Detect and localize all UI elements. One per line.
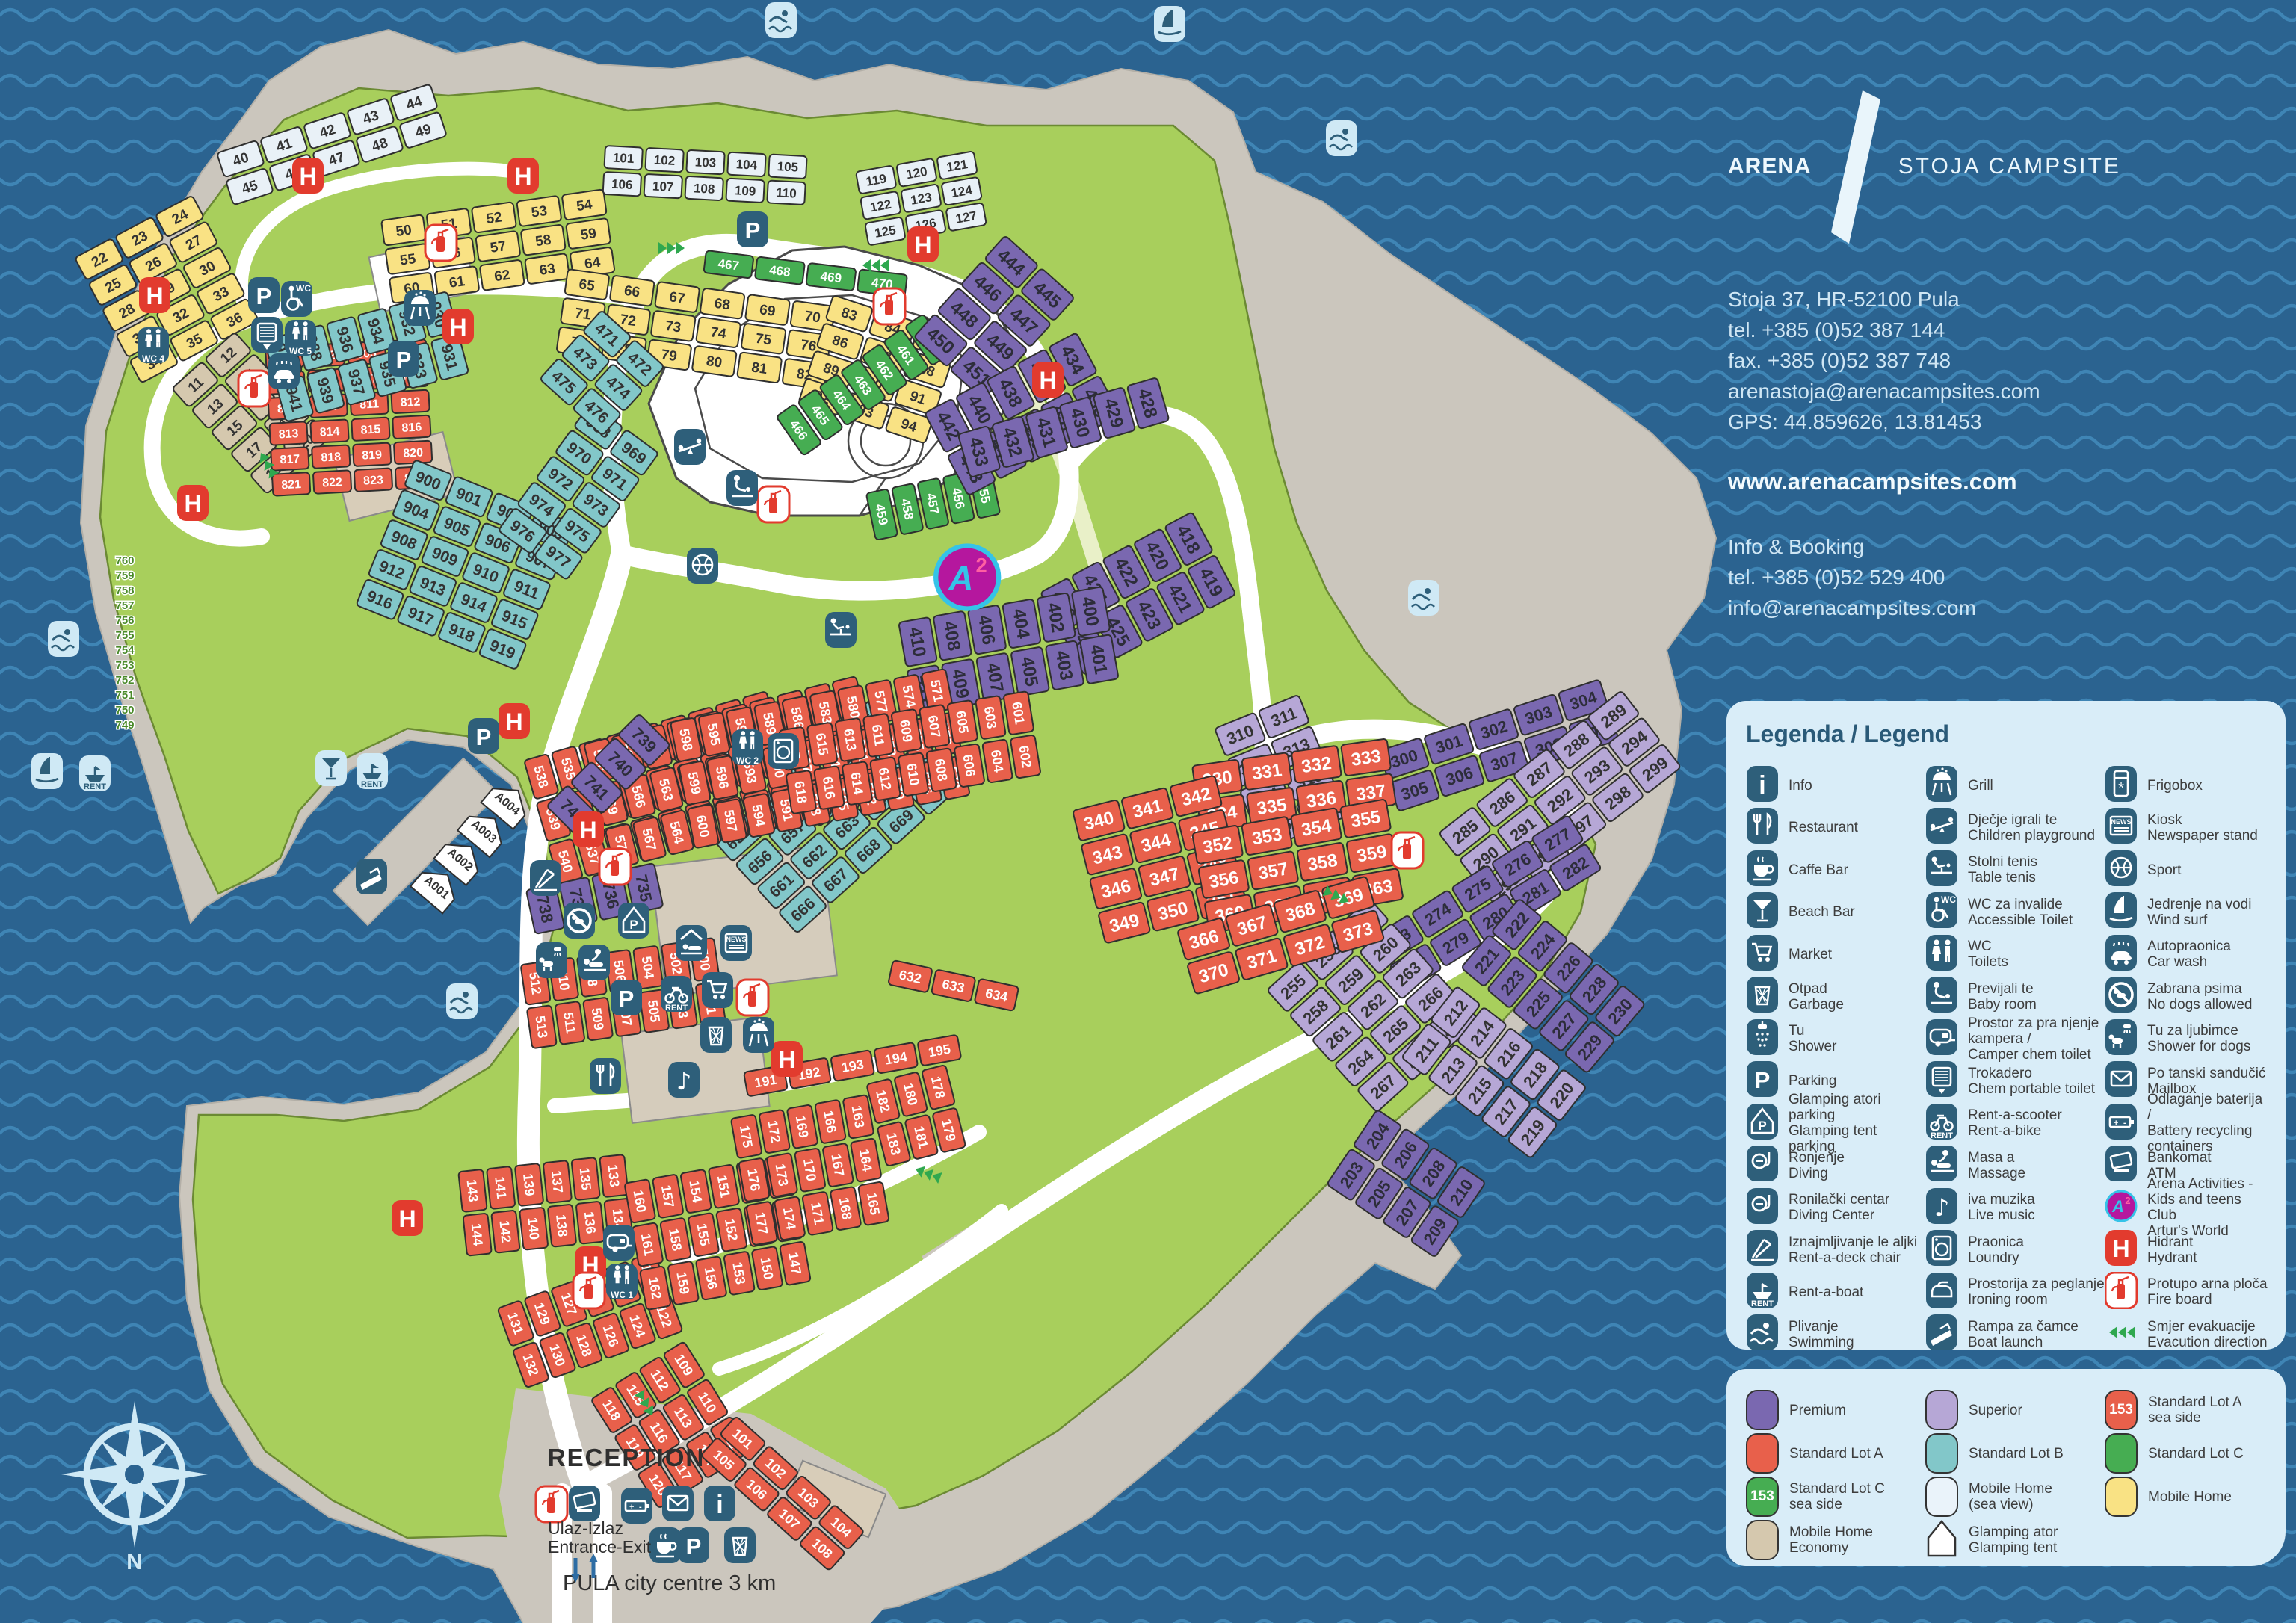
lot-type-label: Standard Lot Csea side [1789,1481,1885,1512]
lot-number: 53 [531,203,549,221]
lot-number: 64 [584,255,602,273]
carw-icon [2105,934,2138,971]
svg-text:P: P [686,1533,702,1559]
svg-text:H: H [778,1046,795,1073]
lot-legend-panel: PremiumStandard Lot A153Standard Lot Cse… [1726,1369,2286,1566]
rentS-icon: RENT [661,976,692,1013]
H-icon: H [507,158,539,194]
lot-type-mobile-home: Mobile HomeEconomy [1746,1518,1925,1562]
fire-icon [737,980,768,1015]
legend-item-iznajmljivanje-le-aljki: Iznajmljivanje le aljkiRent-a-deck chair [1746,1229,1925,1272]
lot-number: 107 [652,179,674,194]
email-line: arenastoja@arenacampsites.com [1728,376,2296,406]
fire-icon [425,225,457,261]
lot-number: 59 [579,226,597,244]
grill-icon [1925,765,1958,803]
rentS-icon: RENT [1925,1103,1958,1140]
lot-number: 814 [319,425,340,439]
lot-number: 509 [589,1007,607,1031]
legend-label: Dječje igrali teChildren playground [1968,812,2095,844]
lot-number: 62 [493,268,511,285]
legend-item-praonica: PraonicaLoundry [1925,1229,2105,1272]
lot-number: 505 [645,999,663,1024]
nodogs-icon [2105,976,2138,1013]
legend-item-dje-je-igrali-te: Dječje igrali teChildren playground [1925,807,2105,850]
lot-number: 101 [612,151,634,166]
mass-icon [578,945,610,980]
svg-text:H: H [914,232,931,259]
H-icon: H [1032,362,1064,398]
i-icon: i [1746,765,1779,803]
svg-text:2: 2 [2125,1195,2130,1206]
website-text: www.arenacampsites.com [1728,469,2296,495]
lot-type-premium: Premium [1746,1388,1925,1432]
lot-number: 511 [561,1011,578,1035]
legend-item-plivanje: PlivanjeSwimming [1746,1314,1925,1356]
legend-label: Masa aMassage [1968,1150,2025,1181]
svg-text:H: H [146,282,163,309]
arena-activities-icon: A2 [936,546,999,609]
deck-icon [530,860,561,896]
lot-number: 139 [520,1173,537,1197]
booking-block: Info & Booking tel. +385 (0)52 529 400 i… [1728,531,2296,623]
lot-number: 80 [706,353,723,371]
svg-text:P: P [1758,1119,1766,1133]
svg-text:P: P [1755,1067,1771,1093]
legend-title: Legenda / Legend [1746,720,2286,748]
lot-number: 144 [469,1222,486,1246]
legend-item-wc-za-invalide: WCWC za invalideAccessible Toilet [1925,891,2105,934]
tentP-icon: P [1746,1103,1779,1140]
legend-grid: iInfoRestaurantCaffe BarBeach BarMarketO… [1746,764,2286,1355]
lot-number: 105 [777,159,798,174]
legend-label: PraonicaLoundry [1968,1234,2024,1266]
lot-swatch [1925,1433,1958,1474]
wcacc-icon: WC [1925,891,1958,929]
map-label: Ulaz-Izlaz [548,1518,623,1538]
lot-number: 817 [280,453,300,466]
lot-number: 58 [534,232,552,250]
campsite-map-poster: 2223242526272829303132333435364041424344… [0,0,2296,1623]
lot-number: 52 [485,209,503,227]
svg-text:-: - [2123,1119,2126,1128]
lot-number: 133 [605,1164,622,1188]
wash-icon [768,733,799,769]
iron-icon [1925,1272,1958,1309]
brand-logo: ARENA STOJA CAMPSITE [1728,88,2296,245]
carw-icon [268,353,300,389]
legend-item-info: iInfo [1746,764,1925,807]
legend-label: OtpadGarbage [1789,981,1844,1013]
cart-icon [1746,934,1779,971]
dogsh-icon [536,942,567,978]
svg-text:H: H [299,163,316,190]
lot-number: 758 [115,584,134,597]
H-icon: H [2105,1229,2138,1267]
lot-number: 335 [1256,795,1288,819]
lot-number: 106 [611,177,633,192]
lot-number: 109 [734,183,756,198]
play-icon [1925,807,1958,844]
lot-number: 332 [1300,753,1333,777]
shower-icon [1746,1018,1779,1056]
lot-number: 135 [577,1167,594,1191]
H-icon: H [442,309,474,344]
legend-label: Jedrenje na vodiWind surf [2147,897,2251,928]
RENT-icon: RENT [79,755,111,791]
legend-label: TrokaderoChem portable toilet [1968,1066,2095,1097]
sleep-icon [676,925,707,961]
NEWS-icon: NEWS [720,925,752,961]
lot-swatch [1925,1390,1958,1430]
lot-number: 816 [401,421,422,434]
legend-label: WCToilets [1968,939,2008,970]
legend-item-protupo-arna-plo-a: Protupo arna pločaFire board [2105,1271,2269,1314]
beachbar-icon [1746,891,1779,929]
trok-icon [251,317,283,353]
surf-icon [1154,6,1185,42]
lot-number: 67 [668,289,686,307]
wc-icon: WC 5 [285,320,316,356]
lot-number: 504 [639,955,657,980]
lot-number: 71 [574,306,592,324]
lot-number: 79 [660,347,678,365]
lot-swatch [2105,1477,2138,1517]
legend-item-kiosk: NEWSKioskNewspaper stand [2105,807,2269,850]
legend-label: Prostorija za peglanjeIroning room [1968,1276,2105,1308]
beachbar-icon [315,750,347,786]
lot-type-label: Standard Lot Asea side [2148,1394,2242,1426]
lot-number: 823 [363,474,384,487]
grill-icon [404,290,436,326]
svg-text:H: H [505,708,522,735]
tentP-icon: P [618,903,649,939]
svg-text:+: + [2114,1119,2118,1128]
legend-item-caffe-bar: Caffe Bar [1746,849,1925,891]
i-icon: i [704,1486,735,1521]
svg-text:A: A [948,558,973,597]
legend-item-zabrana-psima: Zabrana psimaNo dogs allowed [2105,976,2269,1018]
trash-icon [1746,976,1779,1013]
lot-number: 137 [549,1170,566,1194]
gps-line: GPS: 44.859626, 13.81453 [1728,406,2296,437]
lot-number: 333 [1350,746,1382,770]
lot-swatch [1746,1390,1779,1430]
lot-legend-grid: PremiumStandard Lot A153Standard Lot Cse… [1746,1388,2286,1562]
lot-number: 331 [1250,760,1283,784]
legend-label: Beach Bar [1789,904,1855,920]
P-icon: P [468,718,499,754]
P-icon: P [248,277,280,313]
fire-icon [758,486,789,522]
address-line: Stoja 37, HR-52100 Pula [1728,284,2296,315]
legend-item-autopraonica: AutopraonicaCar wash [2105,933,2269,976]
wcfig-icon [1925,934,1958,971]
lot-type-standard-lot-c: 153Standard Lot Csea side [1746,1475,1925,1518]
lot-number: 72 [619,312,637,330]
legend-label: Sport [2147,862,2181,878]
svg-text:-: - [639,1503,642,1512]
svg-text:RENT: RENT [1931,1131,1953,1140]
H-icon: H [139,277,170,313]
legend-item-beach-bar: Beach Bar [1746,891,1925,934]
legend-item-tu-za-ljubimce: Tu za ljubimceShower for dogs [2105,1018,2269,1060]
wcacc-icon: WC [281,281,312,317]
lot-number: 753 [115,659,134,672]
lot-swatch: 153 [1746,1477,1779,1517]
lot-number: 821 [281,478,302,492]
play-icon [674,429,706,465]
legend-item-rampa-za-amce: Rampa za čamceBoat launch [1925,1314,2105,1356]
lot-number: 820 [403,446,424,460]
legend-label: WC za invalideAccessible Toilet [1968,897,2073,928]
legend-item-ronila-ki-centar: Ronilački centarDiving Center [1746,1187,1925,1229]
lot-number: 143 [463,1179,481,1203]
caravan-icon [1925,1018,1958,1056]
svg-text:WC: WC [296,283,311,294]
P-icon: P [678,1527,709,1563]
lot-swatch [1746,1520,1779,1560]
lot-number: 757 [115,599,134,612]
legend-item-odlaganje-baterija-: +-Odlaganje baterija /Battery recyclingc… [2105,1102,2269,1145]
lot-number: 756 [115,614,134,627]
lot-number: 61 [448,273,466,291]
H-icon: H [177,485,209,521]
surf-icon [2105,891,2138,929]
legend-item-sport: Sport [2105,849,2269,891]
lot-number: 73 [664,318,682,336]
basket-icon [687,548,718,584]
music-icon: ♪ [1925,1187,1958,1225]
swim-icon [48,621,79,657]
fire-icon [2105,1272,2138,1309]
wc-icon: WC 4 [138,327,169,364]
legend-label: Frigobox [2147,778,2203,794]
legend-label: Rent-a-scooterRent-a-bike [1968,1107,2062,1139]
lot-type-label: Mobile Home(sea view) [1969,1481,2052,1512]
booking-title: Info & Booking [1728,531,2296,562]
lot-number: 108 [694,181,715,196]
lot-number: 813 [278,427,299,441]
fire-icon [573,1273,605,1308]
lot-number: 815 [360,423,381,436]
legend-item-masa-a: Masa aMassage [1925,1145,2105,1187]
glamping-tent-icon [1925,1518,1958,1559]
H-icon: H [907,226,939,262]
RENT-icon: RENT [1746,1272,1779,1309]
lot-number: 102 [653,153,675,168]
lot-number: 812 [400,396,421,409]
lot-type-standard-lot-a: 153Standard Lot Asea side [2105,1388,2269,1432]
NEWS-icon: NEWS [2105,807,2138,844]
lot-type-label: Standard Lot A [1789,1446,1883,1462]
lot-number: 513 [532,1015,550,1039]
svg-text:H: H [2112,1235,2129,1262]
lot-number: 136 [581,1211,599,1234]
batt-icon: +- [2105,1103,2138,1140]
legend-item-smjer-evakuacije: Smjer evakuacijeEvacution direction [2105,1314,2269,1356]
lot-number: 70 [803,309,821,327]
dogsh-icon [2105,1018,2138,1056]
lot-number: 822 [322,476,343,489]
legend-label: Rent-a-boat [1789,1285,1863,1300]
lot-type-mobile-home: Mobile Home(sea view) [1925,1475,2105,1518]
lot-number: 750 [115,704,134,717]
svg-text:P: P [745,217,761,244]
fork-icon [590,1058,621,1094]
legend-item-frigobox: *Frigobox [2105,764,2269,807]
mass-icon [1925,1145,1958,1182]
svg-text:+: + [629,1503,634,1512]
lot-type-label: Standard Lot B [1969,1446,2064,1462]
lot-type-label: Mobile Home [2148,1489,2232,1505]
launch-icon [356,859,387,894]
trash-icon [724,1527,756,1563]
lot-type-label: Superior [1969,1403,2022,1418]
lot-type-glamping-ator: Glamping atorGlamping tent [1925,1518,2105,1562]
lot-number: 75 [754,331,772,349]
legend-label: RonjenjeDiving [1789,1150,1845,1181]
card-icon [569,1486,600,1521]
lot-number: 467 [717,256,740,273]
lot-number: 104 [735,157,758,172]
lot-number: 759 [115,569,134,582]
legend-label: AutopraonicaCar wash [2147,939,2231,970]
legend-label: Smjer evakuacijeEvacution direction [2147,1319,2268,1350]
legend-item-prostorija-za-peglanje: Prostorija za peglanjeIroning room [1925,1271,2105,1314]
legend-item-tu: Tu Shower [1746,1018,1925,1060]
lot-number: 469 [820,269,842,285]
H-icon: H [392,1200,423,1236]
dive-icon [1746,1187,1779,1225]
svg-text:♪: ♪ [676,1067,691,1095]
swim-icon [1746,1314,1779,1351]
legend-label: Info [1789,778,1812,794]
launch-icon [1925,1314,1958,1351]
legend-label: Market [1789,947,1832,962]
legend-label: Ronilački centarDiving Center [1789,1192,1889,1223]
lot-swatch [2105,1433,2138,1474]
legend-label: Grill [1968,778,1993,794]
lot-type-label: Standard Lot C [2148,1446,2244,1462]
P-icon: P [388,341,419,377]
legend-label: Previjali teBaby room [1968,981,2037,1013]
grill-icon [743,1017,774,1053]
legend-label: Parking [1789,1073,1836,1089]
legend-label: Tu za ljubimceShower for dogs [2147,1023,2250,1054]
map-label: Entrance-Exit [548,1537,652,1556]
legend-item-rent-a-scooter: RENTRent-a-scooterRent-a-bike [1925,1102,2105,1145]
lot-number: 751 [115,689,134,702]
campsite-name: STOJA CAMPSITE [1898,154,2121,179]
svg-text:A: A [2111,1197,2124,1216]
swim-icon [1326,120,1357,156]
baby-icon [726,470,758,506]
svg-text:RENT: RENT [84,782,106,791]
music-icon: ♪ [668,1062,700,1098]
wash-icon [1925,1229,1958,1267]
legend-label: Zabrana psimaNo dogs allowed [2147,981,2252,1013]
legend-panel: Legenda / Legend iInfoRestaurantCaffe Ba… [1726,701,2286,1350]
arrows-icon [2105,1314,2138,1351]
env-icon [2105,1060,2138,1098]
svg-text:P: P [629,918,638,932]
lot-number: 110 [776,185,797,200]
lot-swatch: 153 [2105,1390,2138,1430]
cup-icon [1746,850,1779,887]
lot-type-superior: Superior [1925,1388,2105,1432]
svg-text:H: H [398,1205,416,1232]
svg-text:♪: ♪ [1934,1193,1949,1222]
svg-text:i: i [716,1491,723,1519]
svg-text:WC 2: WC 2 [736,755,759,766]
svg-text:P: P [476,724,492,750]
svg-text:P: P [619,986,635,1012]
svg-text:WC 4: WC 4 [142,353,164,364]
legend-item-rent-a-boat: RENTRent-a-boat [1746,1271,1925,1314]
trok-icon [1925,1060,1958,1098]
deck-icon [1746,1229,1779,1267]
legend-label: Iznajmljivanje le aljkiRent-a-deck chair [1789,1234,1917,1266]
H-icon: H [499,703,530,739]
legend-item-hidrant: HHidrantHydrant [2105,1229,2269,1272]
contact-block: Stoja 37, HR-52100 Pula tel. +385 (0)52 … [1728,284,2296,437]
svg-text:RENT: RENT [1751,1299,1774,1308]
lot-number: 69 [759,302,777,320]
legend-item-otpad: OtpadGarbage [1746,976,1925,1018]
cart-icon [702,972,733,1008]
trash-icon [700,1017,732,1053]
legend-label: iva muzikaLive music [1968,1192,2035,1223]
svg-text:RENT: RENT [361,780,383,789]
fire-icon [874,288,905,324]
legend-item-arena-activities-: A2Arena Activities -Kids and teens ClubA… [2105,1187,2269,1229]
basket-icon [2105,850,2138,887]
dive-icon [1746,1145,1779,1182]
nodogs-icon [564,903,595,939]
arena-slash-icon [1821,90,1889,244]
lot-number: 141 [492,1176,509,1200]
P-icon: P [737,211,768,247]
svg-text:H: H [579,817,596,844]
card-icon [2105,1145,2138,1182]
swim-icon [446,983,478,1019]
legend-item-prostor-za-pra-njenje: Prostor za pra njenjekampera /Camper che… [1925,1018,2105,1060]
legend-label: Rampa za čamceBoat launch [1968,1319,2079,1350]
lot-number: 63 [538,261,556,279]
P-icon: P [1746,1060,1779,1098]
legend-item-ronjenje: RonjenjeDiving [1746,1145,1925,1187]
svg-text:i: i [1759,771,1765,800]
legend-item-trokadero: TrokaderoChem portable toilet [1925,1060,2105,1103]
wc-icon: WC 1 [606,1264,638,1300]
lot-type-label: Premium [1789,1403,1846,1418]
legend-label: Tu Shower [1789,1023,1836,1054]
lot-number: 140 [525,1217,542,1240]
lot-number: 65 [578,276,596,294]
H-icon: H [771,1041,803,1077]
tel-line: tel. +385 (0)52 387 144 [1728,315,2296,345]
svg-text:NEWS: NEWS [2111,818,2132,826]
lot-swatch [1925,1477,1958,1517]
lot-type-standard-lot-b: Standard Lot B [1925,1432,2105,1475]
lot-number: 66 [623,283,641,301]
surf-icon [31,753,63,789]
P-icon: P [611,980,642,1015]
legend-item-previjali-te: Previjali teBaby room [1925,976,2105,1018]
legend-label: KioskNewspaper stand [2147,812,2258,844]
wc-icon: WC 2 [732,729,763,766]
